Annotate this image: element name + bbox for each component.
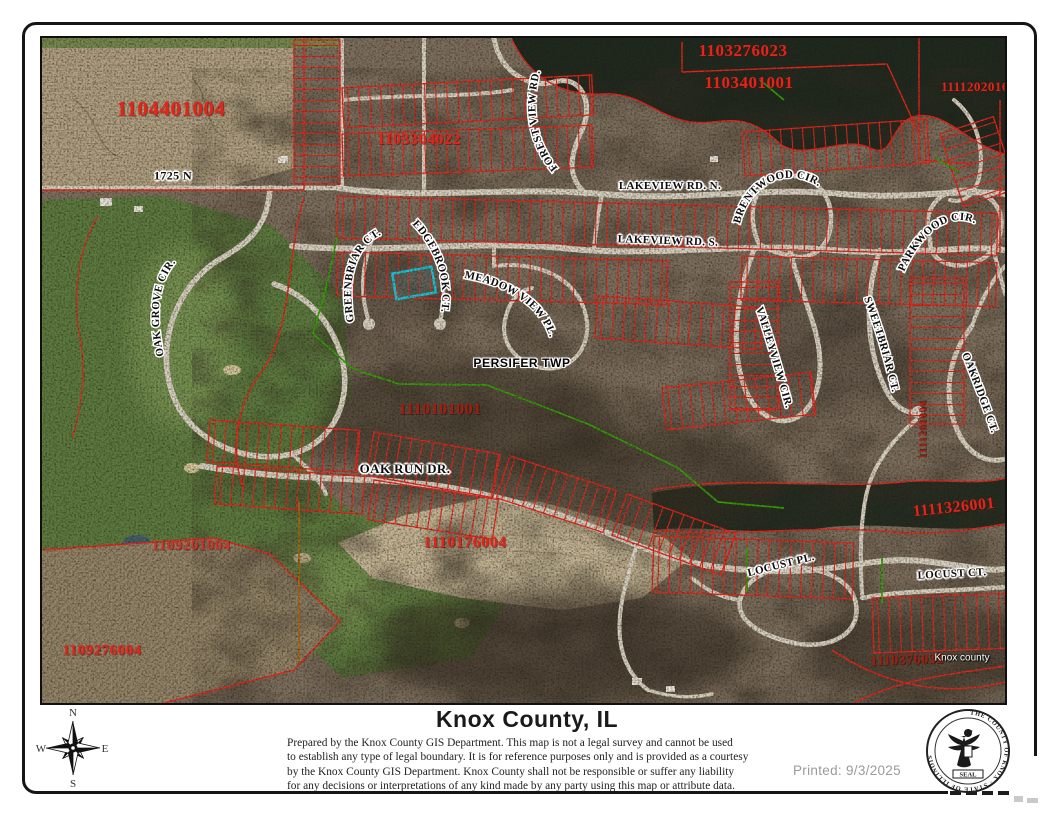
disclaimer-line: Prepared by the Knox County GIS Departme… bbox=[287, 736, 767, 750]
sheet-border: FOREST VIEW RD.BRENTWOOD CIR.PARKWOOD CI… bbox=[22, 22, 1037, 794]
compass-rose: N E S W bbox=[35, 706, 111, 790]
disclaimer-line: for any decisions or interpretations of … bbox=[287, 779, 767, 793]
map-sheet: FOREST VIEW RD.BRENTWOOD CIR.PARKWOOD CI… bbox=[0, 0, 1056, 816]
disclaimer-line: by the Knox County GIS Department. Knox … bbox=[287, 765, 767, 779]
faded-mark bbox=[1014, 796, 1023, 802]
compass-e-label: E bbox=[102, 743, 109, 755]
map-canvas: FOREST VIEW RD.BRENTWOOD CIR.PARKWOOD CI… bbox=[42, 38, 1005, 703]
photo-grain bbox=[42, 38, 1005, 703]
seal-shield bbox=[964, 746, 972, 757]
compass-w-label: W bbox=[36, 743, 47, 755]
map-viewport: FOREST VIEW RD.BRENTWOOD CIR.PARKWOOD CI… bbox=[40, 36, 1007, 705]
disclaimer-line: to establish any type of legal boundary.… bbox=[287, 750, 767, 764]
compass-s-label: S bbox=[70, 778, 76, 790]
printed-date: Printed: 9/3/2025 bbox=[793, 763, 901, 778]
faded-mark bbox=[1027, 798, 1038, 803]
seal-banner-text: SEAL bbox=[960, 772, 978, 779]
map-footer: N E S W Knox County, IL Prepared by the … bbox=[25, 706, 1034, 791]
title-block: Knox County, IL Prepared by the Knox Cou… bbox=[287, 706, 767, 793]
compass-n-label: N bbox=[69, 707, 77, 719]
map-title: Knox County, IL bbox=[287, 706, 767, 733]
county-seal: THE COUNTY OF KNOX · STATE OF ILLINOIS S… bbox=[923, 706, 1013, 796]
